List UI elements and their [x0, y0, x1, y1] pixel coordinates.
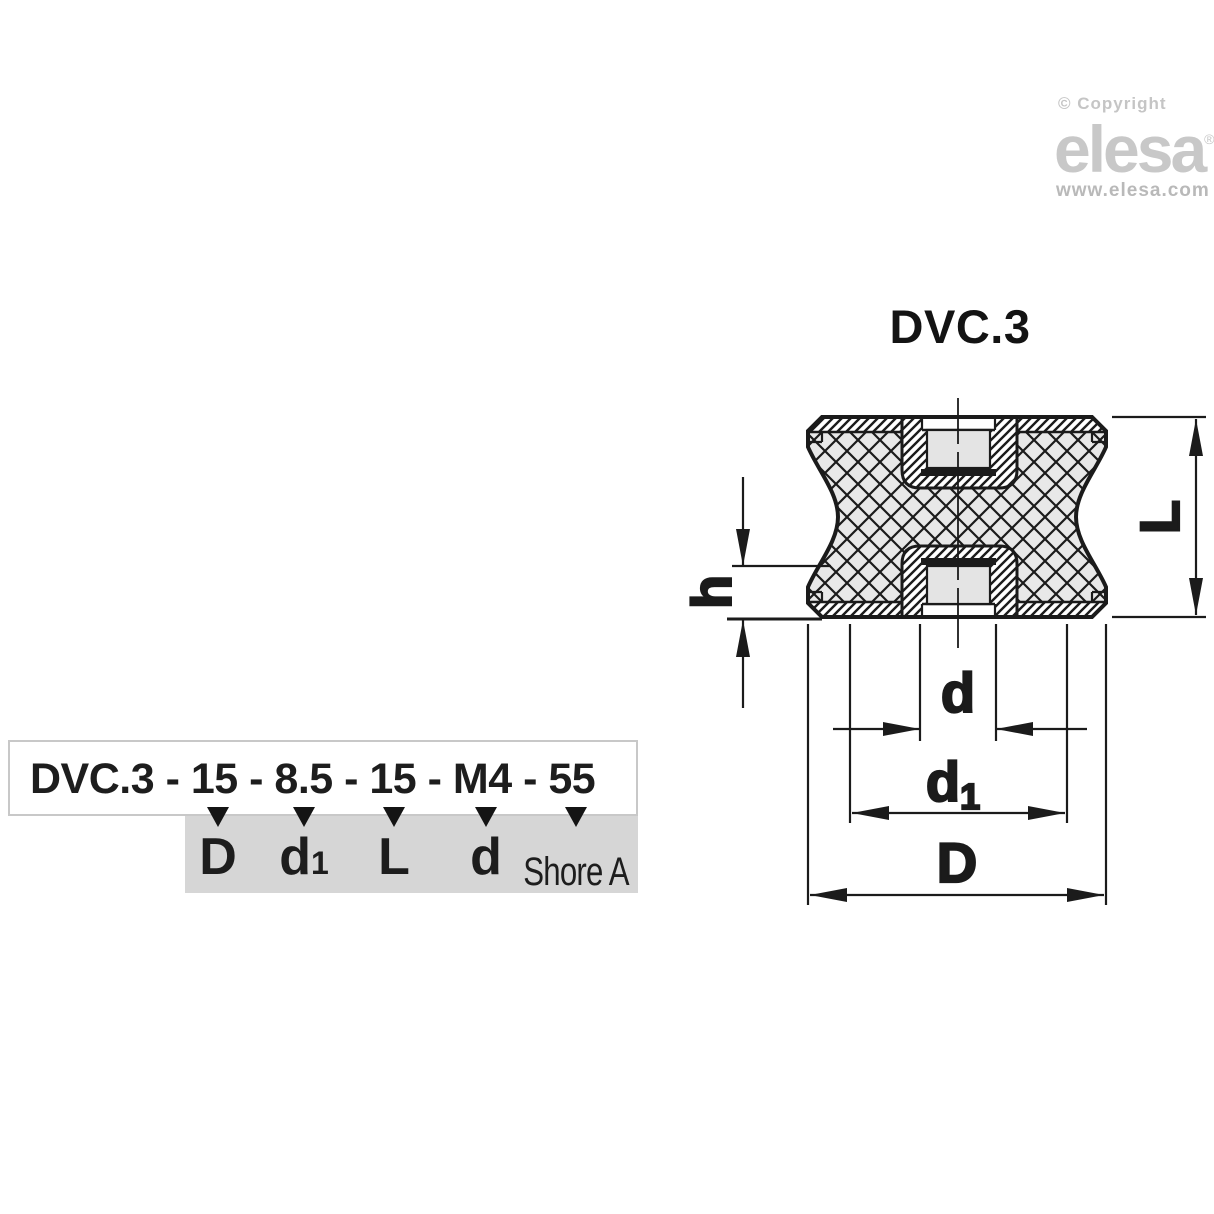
legend-label-shore-a: Shore A [508, 842, 643, 894]
ordering-code: DVC.3 - 15 - 8.5 - 15 - M4 - 55 [30, 755, 595, 804]
dimension-L: L [1112, 417, 1206, 617]
dim-label-d1: d1 [926, 750, 980, 817]
bottom-bushing [902, 546, 1017, 618]
dim-label-d: d [941, 661, 975, 724]
triangle-down-icon [207, 807, 229, 827]
dim-label-h: h [680, 575, 743, 609]
legend-label-D: D [199, 831, 237, 883]
technical-drawing: L h d d1 D [0, 0, 1214, 1214]
legend-label-d: d [470, 831, 502, 883]
triangle-down-icon [383, 807, 405, 827]
dimension-d: d [833, 624, 1087, 741]
top-bushing [902, 416, 1017, 488]
legend-label-d1: d1 [279, 831, 329, 883]
triangle-down-icon [475, 807, 497, 827]
triangle-down-icon [293, 807, 315, 827]
ordering-code-box: DVC.3 - 15 - 8.5 - 15 - M4 - 55 [8, 740, 638, 816]
triangle-down-icon [565, 807, 587, 827]
dim-label-D: D [937, 831, 977, 894]
legend-label-L: L [378, 831, 410, 883]
page: © Copyright elesa® www.elesa.com DVC.3 [0, 0, 1214, 1214]
dim-label-L: L [1128, 500, 1191, 534]
